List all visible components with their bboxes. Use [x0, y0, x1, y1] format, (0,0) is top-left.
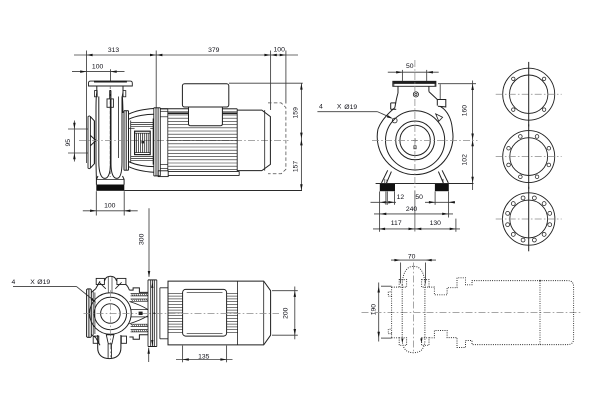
svg-text:240: 240 [406, 206, 418, 213]
svg-text:379: 379 [208, 47, 220, 54]
svg-text:313: 313 [108, 47, 120, 54]
svg-text:100: 100 [274, 47, 286, 54]
svg-text:130: 130 [430, 220, 442, 227]
svg-text:X: X [30, 279, 35, 286]
svg-text:100: 100 [92, 64, 104, 71]
svg-text:100: 100 [104, 202, 116, 209]
svg-text:190: 190 [371, 304, 378, 316]
svg-text:4: 4 [12, 279, 16, 286]
svg-text:159: 159 [293, 107, 300, 119]
svg-text:Ø19: Ø19 [37, 279, 50, 286]
svg-text:160: 160 [462, 105, 469, 117]
svg-text:Ø19: Ø19 [344, 104, 357, 111]
svg-text:70: 70 [408, 254, 416, 261]
svg-text:50: 50 [406, 63, 414, 70]
svg-text:200: 200 [282, 307, 289, 319]
svg-text:95: 95 [65, 139, 72, 147]
svg-text:12: 12 [397, 194, 405, 201]
svg-text:135: 135 [198, 353, 210, 360]
svg-text:4: 4 [319, 104, 323, 111]
svg-text:102: 102 [462, 154, 469, 166]
svg-text:50: 50 [415, 194, 423, 201]
svg-text:157: 157 [293, 161, 300, 173]
svg-text:X: X [337, 104, 342, 111]
svg-text:117: 117 [391, 220, 402, 227]
svg-text:300: 300 [139, 233, 146, 245]
